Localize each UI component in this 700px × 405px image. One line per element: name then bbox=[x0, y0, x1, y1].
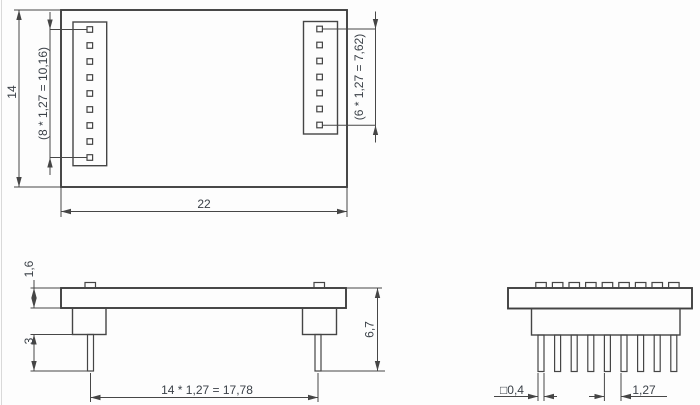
dim-overall-height: 6,7 bbox=[321, 288, 385, 371]
pcb-edge-outline bbox=[61, 288, 346, 308]
pin-lead bbox=[315, 335, 321, 372]
pin-pad bbox=[87, 123, 93, 129]
pin-lead bbox=[571, 335, 577, 372]
dim-label-right-pin-row: (6 * 1,27 = 7,62) bbox=[352, 34, 366, 120]
dim-label-overall-height: 6,7 bbox=[363, 321, 377, 338]
dim-board-height: 14 bbox=[5, 10, 61, 187]
pin-pad bbox=[87, 43, 93, 49]
pin-pad bbox=[87, 27, 93, 33]
pin-pad bbox=[317, 106, 323, 112]
front-view: 1,6 3 6,7 14 * 1,27 = 17,78 bbox=[22, 260, 385, 402]
drawing-canvas: 14 22 (8 * 1,27 = 10,16) (6 * 1,27 = 7,6… bbox=[0, 0, 700, 405]
pin-pad bbox=[317, 74, 323, 80]
pin-header-left bbox=[73, 22, 107, 166]
connector-housing-left bbox=[73, 308, 107, 335]
connector-housing-right bbox=[303, 308, 337, 335]
pin-lead bbox=[671, 335, 677, 372]
technical-drawing-page: 14 22 (8 * 1,27 = 10,16) (6 * 1,27 = 7,6… bbox=[0, 0, 700, 405]
pin-lead bbox=[588, 335, 594, 372]
pin-lead bbox=[538, 335, 544, 372]
pin-lead bbox=[604, 335, 610, 372]
dim-board-width: 22 bbox=[61, 188, 347, 218]
pin-pad bbox=[317, 42, 323, 48]
pin-header-right bbox=[304, 22, 338, 135]
pin-pad bbox=[317, 26, 323, 32]
dim-label-pin-pitch: 1,27 bbox=[632, 383, 656, 397]
dim-pin-row-span: 14 * 1,27 = 17,78 bbox=[91, 373, 319, 402]
pin-pad bbox=[87, 139, 93, 145]
pin-lead bbox=[621, 335, 627, 372]
pin-pad bbox=[87, 107, 93, 113]
pin-pad bbox=[87, 91, 93, 97]
dim-label-board-height: 14 bbox=[5, 85, 19, 99]
dim-label-left-pin-row: (8 * 1,27 = 10,16) bbox=[36, 47, 50, 140]
pcb-edge-outline bbox=[508, 288, 692, 309]
dim-label-pin-width: □0,4 bbox=[500, 383, 524, 397]
pin-lead bbox=[654, 335, 660, 372]
pin-lead bbox=[638, 335, 644, 372]
pin-pad bbox=[317, 58, 323, 64]
dim-pin-protrusion: 3 bbox=[22, 335, 88, 372]
pin-lead bbox=[555, 335, 561, 372]
dim-label-board-width: 22 bbox=[197, 197, 211, 211]
dim-pin-pitch: 1,27 bbox=[589, 373, 667, 401]
pin-pad bbox=[317, 90, 323, 96]
dim-pin-width: □0,4 bbox=[494, 373, 557, 401]
dim-right-pin-row: (6 * 1,27 = 7,62) bbox=[322, 12, 375, 143]
dim-label-board-thickness: 1,6 bbox=[22, 260, 36, 277]
pin-lead bbox=[88, 335, 94, 372]
pin-leads bbox=[538, 335, 677, 372]
dim-label-pin-row-span: 14 * 1,27 = 17,78 bbox=[161, 383, 253, 397]
pin-pad bbox=[87, 59, 93, 65]
dim-board-thickness: 1,6 bbox=[22, 260, 61, 308]
side-view: □0,4 1,27 bbox=[494, 283, 692, 402]
top-view: 14 22 (8 * 1,27 = 10,16) (6 * 1,27 = 7,6… bbox=[5, 10, 376, 217]
dim-label-pin-protrusion: 3 bbox=[22, 337, 36, 344]
connector-housing bbox=[532, 309, 681, 336]
pin-pad bbox=[317, 122, 323, 128]
pin-pad bbox=[87, 155, 93, 161]
pin-pad bbox=[87, 75, 93, 81]
header-body bbox=[304, 22, 338, 135]
